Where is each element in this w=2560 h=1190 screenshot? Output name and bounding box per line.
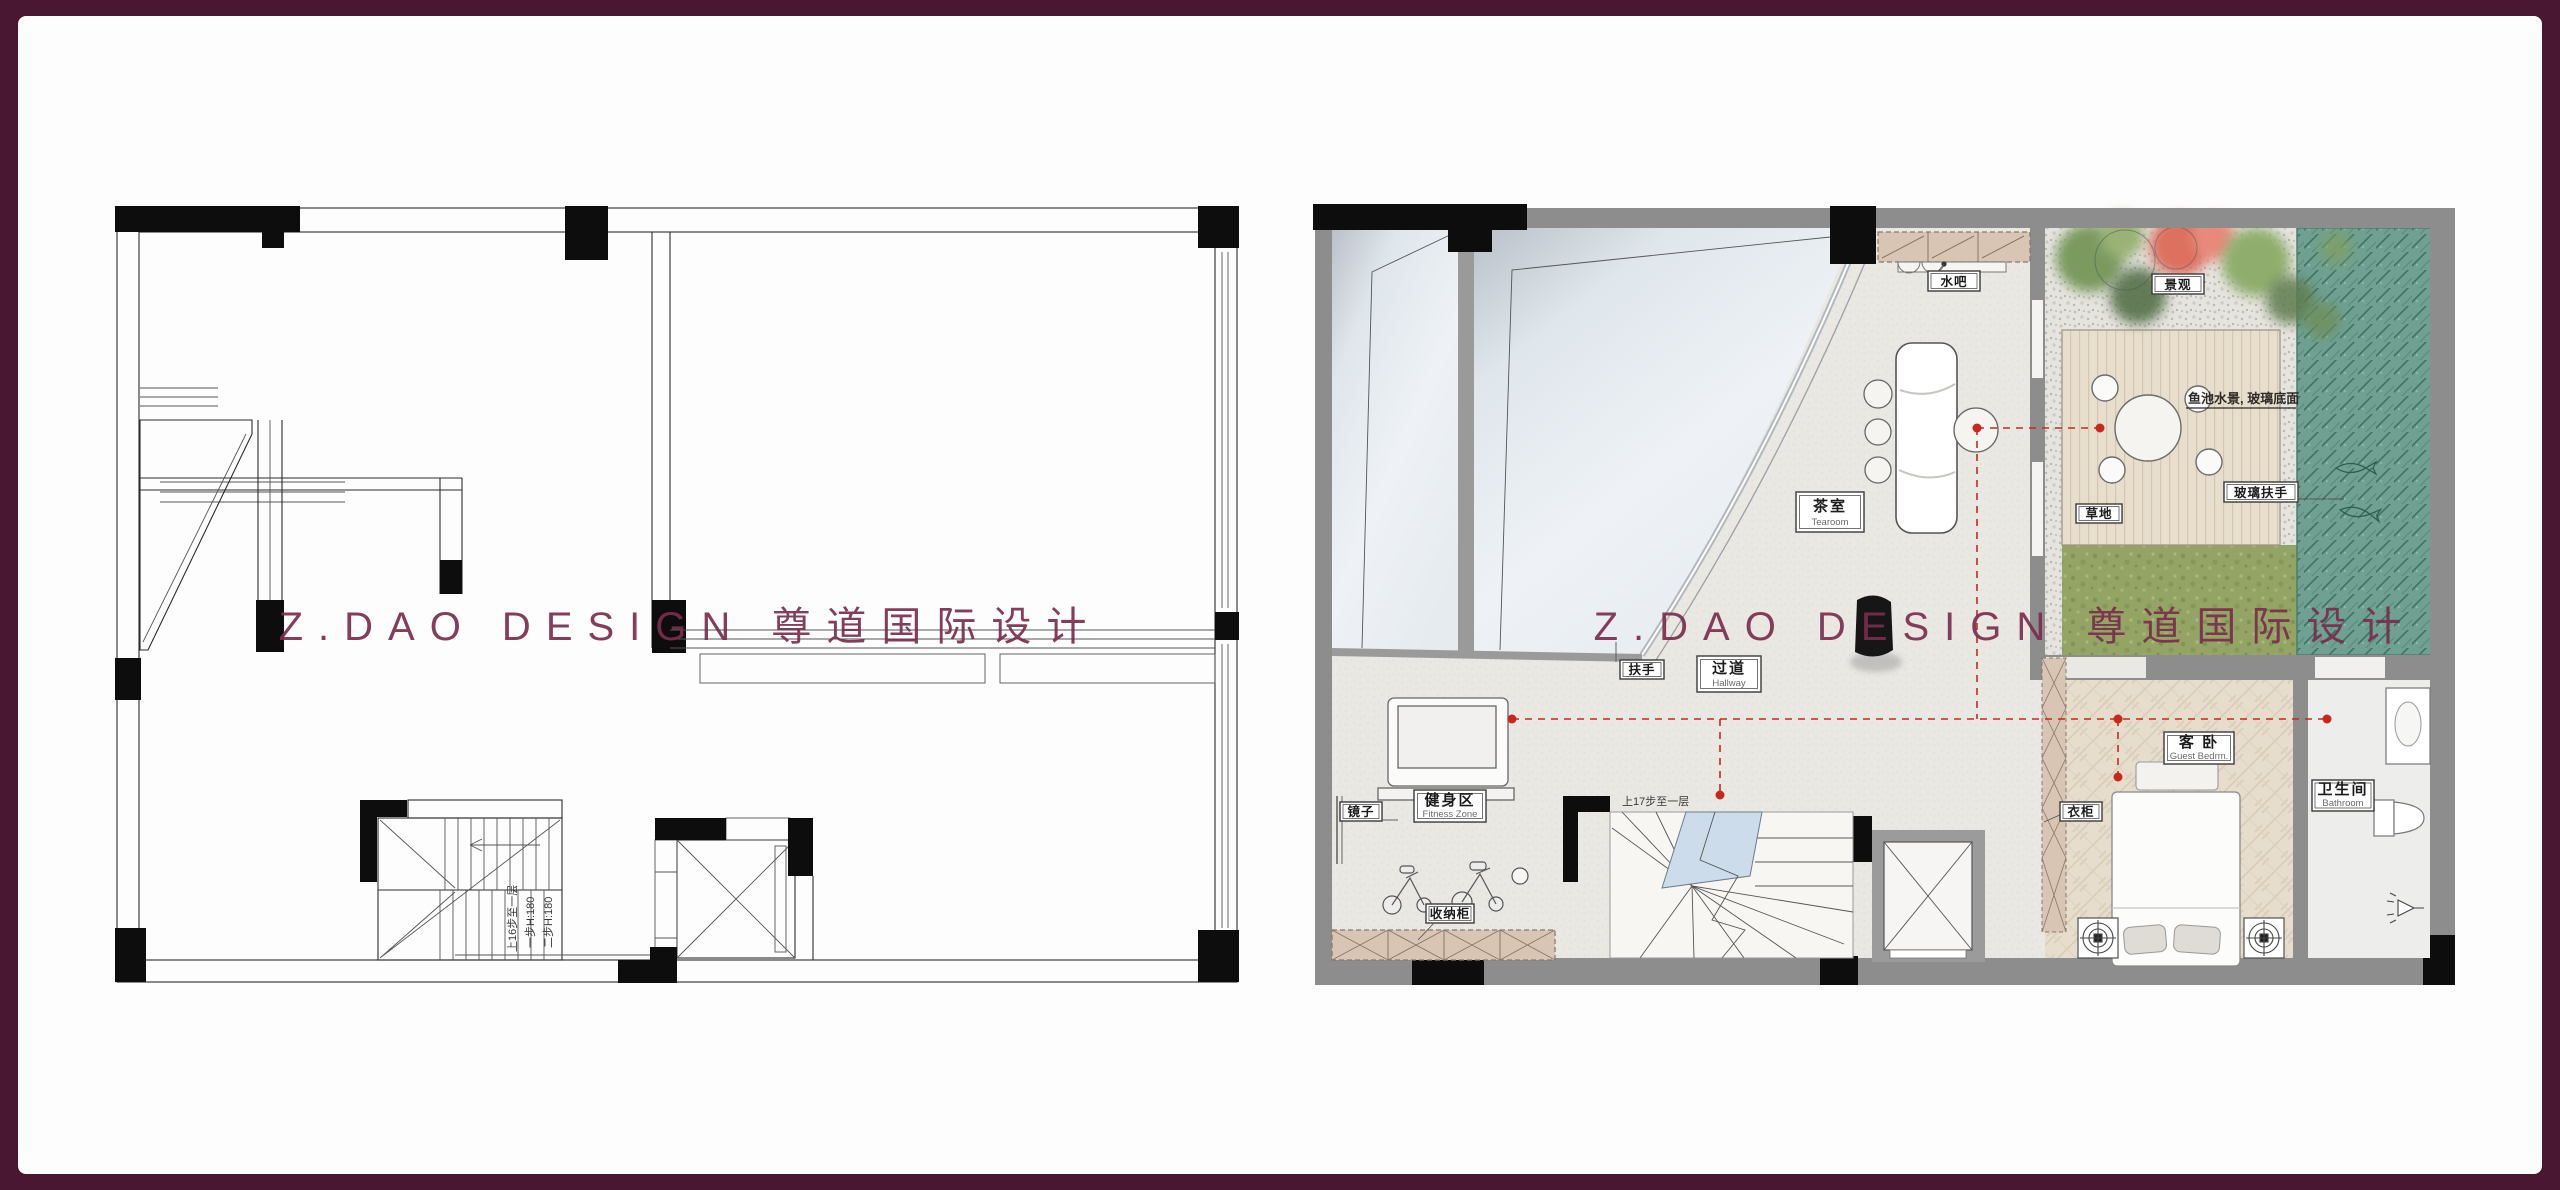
fish-pond	[2297, 228, 2432, 655]
label-fish-pond-note: 鱼池水景, 玻璃底面	[2186, 391, 2299, 408]
right-plan-stairs	[1610, 791, 1853, 959]
floor-plan-presentation: { "frame": { "background": "#4a1732", "p…	[0, 0, 2560, 1190]
column	[115, 206, 300, 232]
svg-text:客 卧: 客 卧	[2178, 733, 2219, 751]
svg-text:草地: 草地	[2085, 506, 2112, 521]
left-stair-note-3: 二步H:180	[542, 897, 555, 948]
label-water-bar: 水吧	[1928, 271, 1980, 291]
svg-text:收纳柜: 收纳柜	[1430, 906, 1471, 921]
svg-text:健身区: 健身区	[1424, 791, 1475, 809]
bed	[2112, 762, 2240, 966]
label-guest-bedroom: 客 卧 Guest Bedrm.	[2164, 732, 2234, 764]
label-bathroom: 卫生间 Bathroom	[2312, 780, 2374, 811]
svg-text:茶室: 茶室	[1813, 497, 1847, 515]
svg-text:卫生间: 卫生间	[2317, 780, 2368, 798]
wardrobe	[2042, 658, 2066, 932]
svg-text:玻璃扶手: 玻璃扶手	[2234, 485, 2288, 500]
left-structural-plan: 上16步至一层 一步H:180 二步H:180	[115, 206, 1239, 983]
svg-text:水吧: 水吧	[1940, 274, 1967, 289]
left-stair-note-1: 上16步至一层	[506, 885, 519, 952]
ceiling-fan-icon	[2078, 918, 2118, 958]
svg-text:鱼池水景, 玻璃底面: 鱼池水景, 玻璃底面	[2188, 391, 2299, 406]
label-landscape: 景观	[2152, 274, 2204, 294]
label-fitness-zone: 健身区 Fitness Zone	[1414, 790, 1486, 822]
svg-text:镜子: 镜子	[1347, 804, 1374, 819]
svg-text:衣柜: 衣柜	[2067, 804, 2094, 819]
svg-text:景观: 景观	[2164, 278, 2191, 292]
label-tea-room: 茶室 Tearoom	[1796, 492, 1864, 532]
left-plan-stairs: 上16步至一层 一步H:180 二步H:180	[360, 800, 665, 960]
svg-text:Fitness Zone: Fitness Zone	[1423, 809, 1478, 820]
left-plan-elevator	[618, 818, 813, 983]
garden-courtyard	[2045, 214, 2432, 655]
svg-text:Tearoom: Tearoom	[1812, 517, 1849, 528]
grass-lawn	[2062, 545, 2297, 655]
label-grass: 草地	[2076, 504, 2122, 523]
right-furnished-plan: 水吧 景观 茶室 Tearoom 鱼池水景, 玻璃底面 玻璃扶手	[1313, 204, 2455, 985]
label-stairs-note: 上17步至一层	[1622, 795, 1689, 808]
svg-text:过道: 过道	[1712, 659, 1746, 677]
ceiling-fan-icon	[2244, 918, 2284, 958]
label-hallway: 过道 Hallway	[1697, 656, 1761, 692]
floor-plans-canvas: 上16步至一层 一步H:180 二步H:180	[0, 0, 2560, 1190]
storage-cabinets	[1332, 930, 1555, 960]
svg-text:Hallway: Hallway	[1712, 678, 1746, 689]
left-stair-note-2: 一步H:180	[524, 897, 537, 948]
svg-text:扶手: 扶手	[1628, 662, 1655, 677]
right-plan-elevator	[1872, 830, 1985, 962]
svg-text:Bathroom: Bathroom	[2322, 798, 2363, 809]
svg-text:Guest Bedrm.: Guest Bedrm.	[2170, 751, 2229, 762]
treadmill	[1378, 698, 1514, 800]
